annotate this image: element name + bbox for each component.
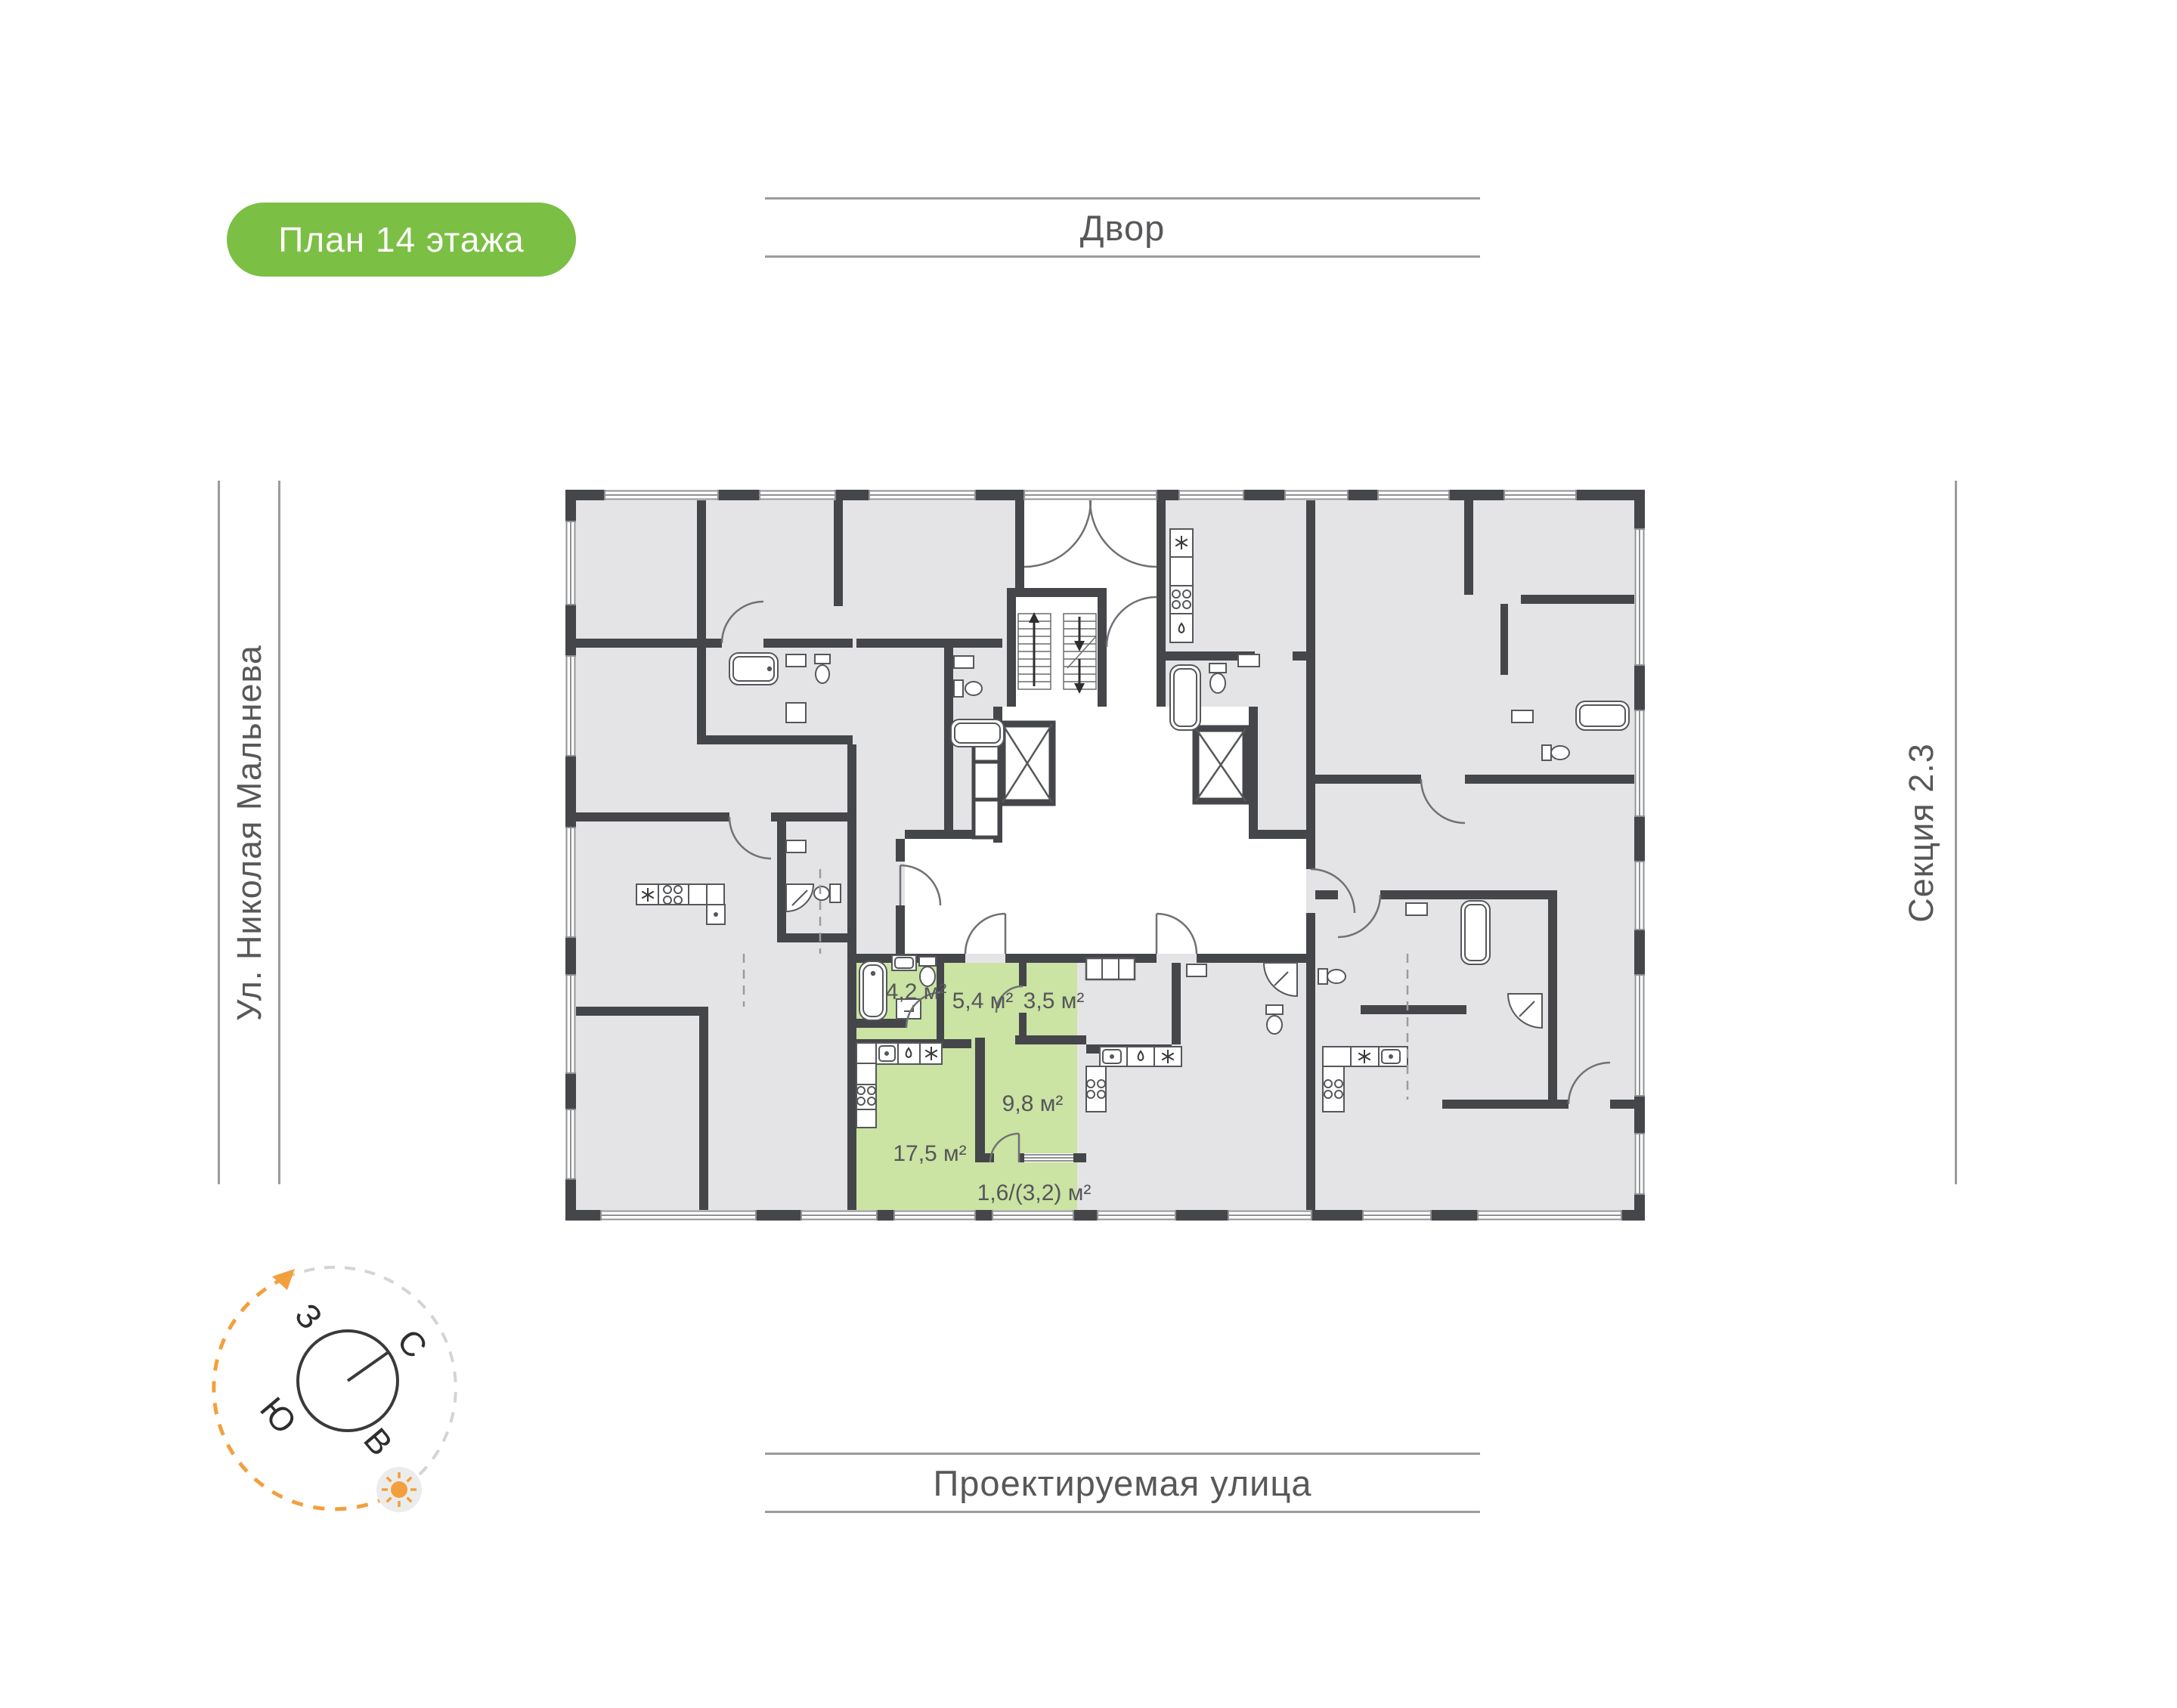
sink-icon (1187, 964, 1206, 976)
section-label: Секция 2.3 (1888, 481, 1957, 1184)
compass-rose: З С Ю В (189, 1232, 506, 1549)
toilet-icon (1318, 969, 1327, 984)
courtyard-label: Двор (765, 197, 1480, 258)
toilet-icon (1266, 1005, 1283, 1014)
room-area-label: 1,6/(3,2) м² (977, 1180, 1092, 1205)
sun-icon (391, 1481, 407, 1498)
stove-counter (1323, 1066, 1344, 1112)
room-area-label: 9,8 м² (1002, 1091, 1064, 1116)
section-text: Секция 2.3 (1902, 743, 1941, 923)
balcony-window (1024, 1153, 1073, 1162)
sink-icon (954, 656, 974, 668)
room-area-label: 3,5 м² (1023, 989, 1085, 1013)
compass-west: З (287, 1296, 330, 1337)
stove-counter (1086, 1066, 1106, 1112)
toilet-icon (1542, 745, 1551, 760)
compass-north: С (389, 1322, 435, 1366)
appliance-icon (786, 703, 806, 722)
toilet-icon (815, 654, 830, 664)
sink-icon (1238, 654, 1259, 667)
sink-icon (786, 654, 806, 667)
floor-plan: 4,2 м² 5,4 м² 3,5 м² 9,8 м² 17,5 м² 1,6/… (552, 469, 1663, 1232)
projected-street-label: Проектируемая улица (765, 1453, 1480, 1513)
street-malneva-label: Ул. Николая Мальнева (218, 481, 280, 1184)
toilet-icon (919, 957, 936, 966)
compass-south: Ю (252, 1390, 304, 1441)
compass-arrow-icon (272, 1269, 295, 1290)
toilet-icon (954, 680, 963, 697)
page: { "page": { "badge": "План 14 этажа" }, … (0, 0, 2177, 1708)
courtyard-text: Двор (1080, 207, 1166, 249)
street-malneva-text: Ул. Николая Мальнева (230, 645, 269, 1021)
room-area-label: 17,5 м² (893, 1141, 966, 1166)
room-area-label: 4,2 м² (886, 979, 947, 1004)
toilet-icon (1209, 664, 1226, 673)
sink-icon (1512, 710, 1533, 722)
room-area-label: 5,4 м² (952, 989, 1014, 1013)
projected-street-text: Проектируемая улица (934, 1462, 1312, 1504)
toilet-icon (830, 884, 841, 902)
sink-icon (1406, 903, 1427, 915)
sink-icon (786, 840, 806, 852)
floor-badge-label: План 14 этажа (278, 219, 525, 260)
floor-badge: План 14 этажа (227, 203, 576, 277)
